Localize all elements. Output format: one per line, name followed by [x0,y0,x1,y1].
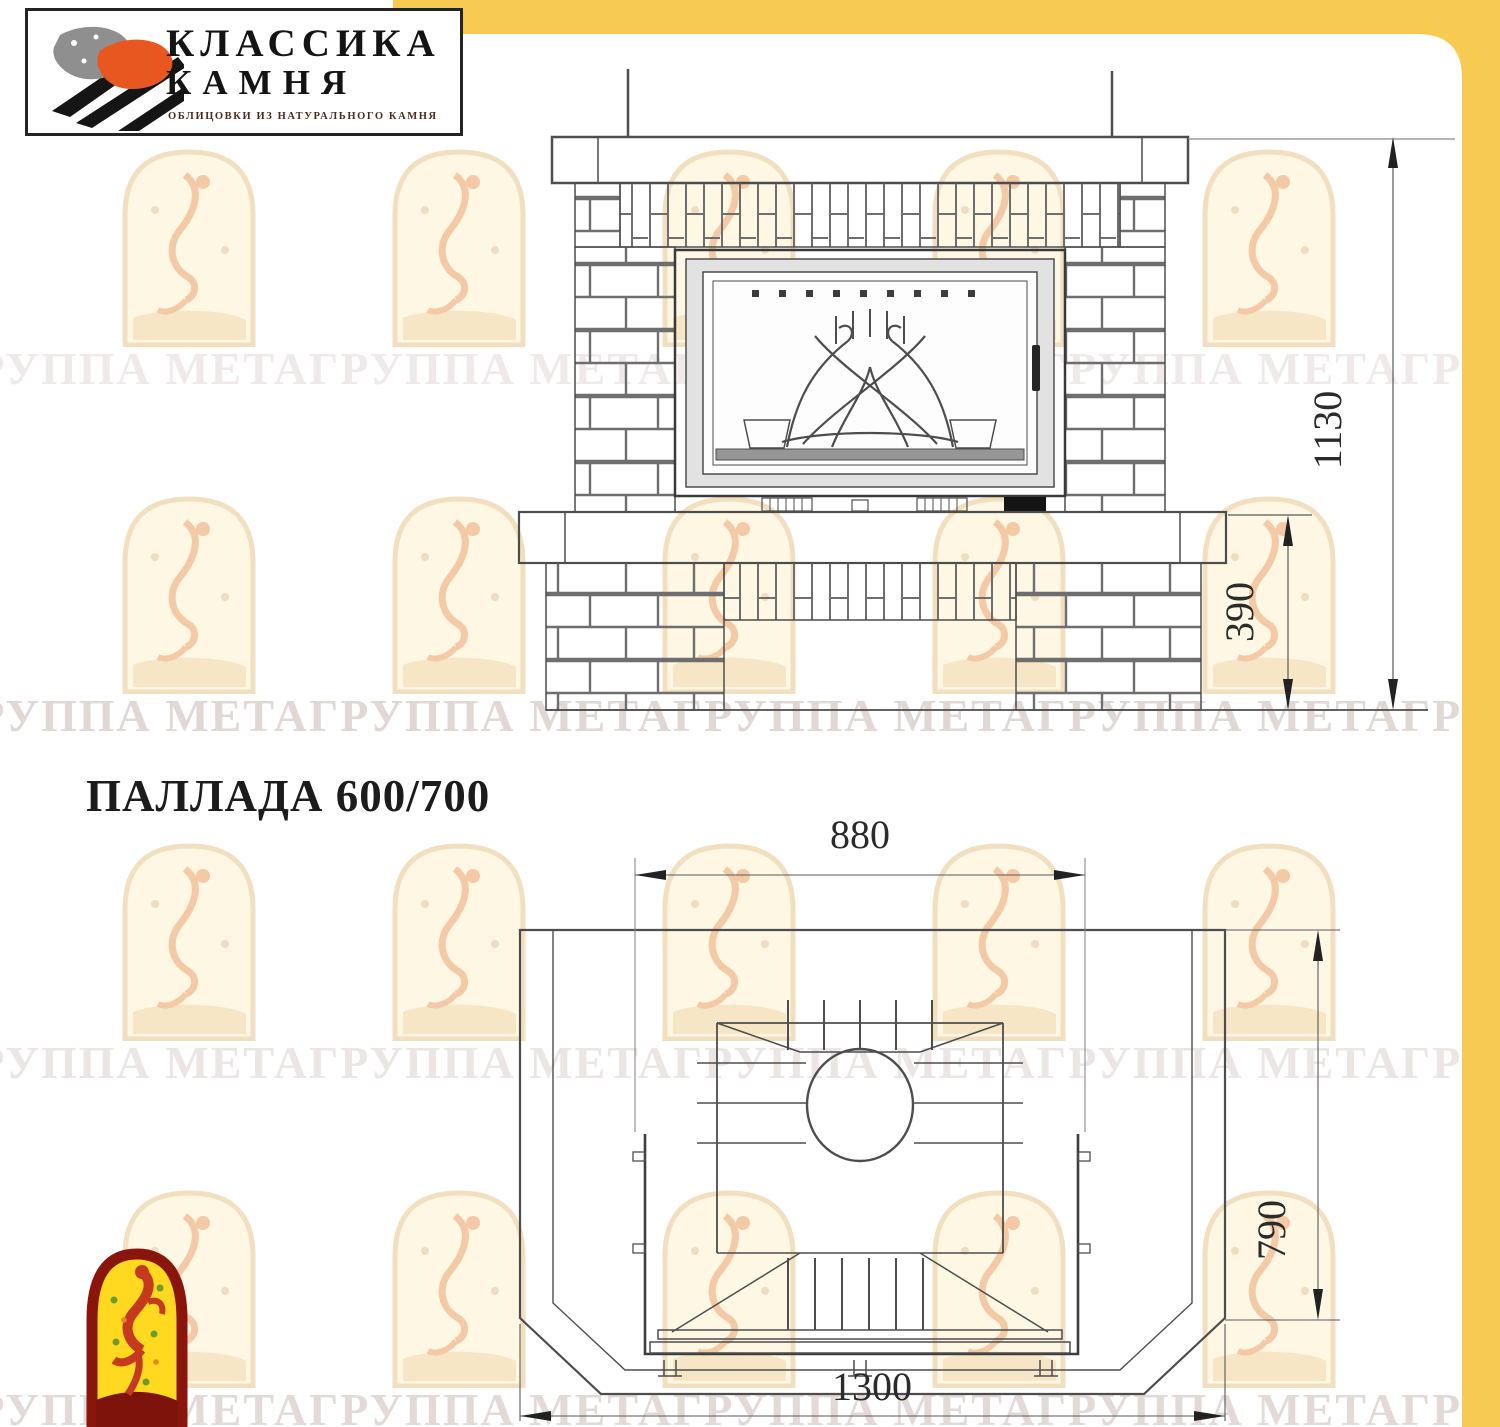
watermark-text-row: ГРУППА МЕТАГРУППА МЕТАГРУППА МЕТАГРУППА … [0,1383,1500,1427]
ash-vents [762,497,1046,512]
logo-title-line2: КАМНЯ [166,63,357,103]
logo-subtitle: ОБЛИЦОВКИ ИЗ НАТУРАЛЬНОГО КАМНЯ [168,111,438,122]
page: ГРУППА МЕТАГРУППА МЕТАГРУППА МЕТАГРУППА … [0,0,1500,1427]
front-dimensions: 1130 390 [1217,137,1398,710]
firebird-arch-logo [84,1242,190,1427]
watermark-text-row: ГРУППА МЕТАГРУППА МЕТАГРУППА МЕТАГРУППА … [0,342,1500,388]
dim-top-width: 880 [830,812,890,857]
grate-base [716,449,1024,460]
watermark-text-row: ГРУППА МЕТАГРУППА МЕТАГРУППА МЕТАГРУППА … [0,1036,1500,1082]
watermark-text-row: ГРУППА МЕТАГРУППА МЕТАГРУППА МЕТАГРУППА … [0,689,1500,735]
page-title: ПАЛЛАДА 600/700 [86,770,490,822]
dim-depth: 790 [1249,1200,1294,1260]
logo-title-line1: КЛАССИКА [166,21,441,66]
hearth-shelf [519,512,1226,563]
plan-dimensions: 880 790 1300 [520,812,1340,1421]
stone-logo-icon [34,15,184,131]
plan-view [520,858,1225,1394]
plan-inner-contour [553,930,1192,1370]
chimney-pipes [628,69,1112,137]
company-logo-box: КЛАССИКА КАМНЯ ОБЛИЦОВКИ ИЗ НАТУРАЛЬНОГО… [25,8,463,136]
dim-total-height: 1130 [1305,391,1350,470]
front-elevation [519,69,1455,710]
dim-base-height: 390 [1217,582,1262,642]
left-pedestal [546,563,724,710]
upper-frieze-slats [620,183,1120,247]
insert-bracket [645,1134,1078,1354]
mantel-shelf [552,137,1188,183]
vent-dots [752,290,975,297]
right-pedestal [1016,563,1201,710]
plan-outer-contour [520,930,1225,1394]
lower-frieze-slats [724,563,1016,620]
